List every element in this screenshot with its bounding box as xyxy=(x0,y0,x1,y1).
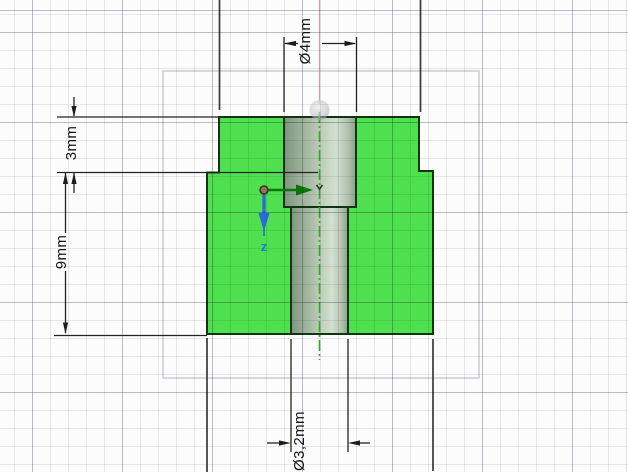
dimension-3mm[interactable]: 3mm xyxy=(57,97,219,193)
dimension-dia4mm[interactable]: Ø4mm xyxy=(284,18,357,112)
arrow-right-inward xyxy=(279,440,291,445)
dimension-text-3mm[interactable]: 3mm xyxy=(63,126,80,161)
cad-viewport[interactable]: z 3mm 9mm Ø4mm xyxy=(0,0,628,472)
dimension-9mm[interactable]: 9mm xyxy=(53,173,207,336)
dimension-text-dia4mm[interactable]: Ø4mm xyxy=(297,18,314,65)
arrow-down xyxy=(63,323,68,335)
arrow-up xyxy=(71,173,76,185)
arrow-up xyxy=(63,173,68,185)
dimension-text-dia3-2mm[interactable]: Ø3,2mm xyxy=(291,411,308,471)
arrow-left-inward xyxy=(348,440,360,445)
dimension-dia3-2mm[interactable]: Ø3,2mm xyxy=(267,339,370,471)
dimension-text-9mm[interactable]: 9mm xyxy=(53,235,70,270)
origin-point[interactable] xyxy=(260,186,268,194)
arrow-right xyxy=(345,41,357,46)
arrow-left xyxy=(284,41,296,46)
arrow-down xyxy=(71,106,76,117)
origin-sphere-handle[interactable] xyxy=(310,100,330,120)
z-axis-label: z xyxy=(261,239,268,254)
sketch-drawing: z 3mm 9mm Ø4mm xyxy=(0,0,628,472)
